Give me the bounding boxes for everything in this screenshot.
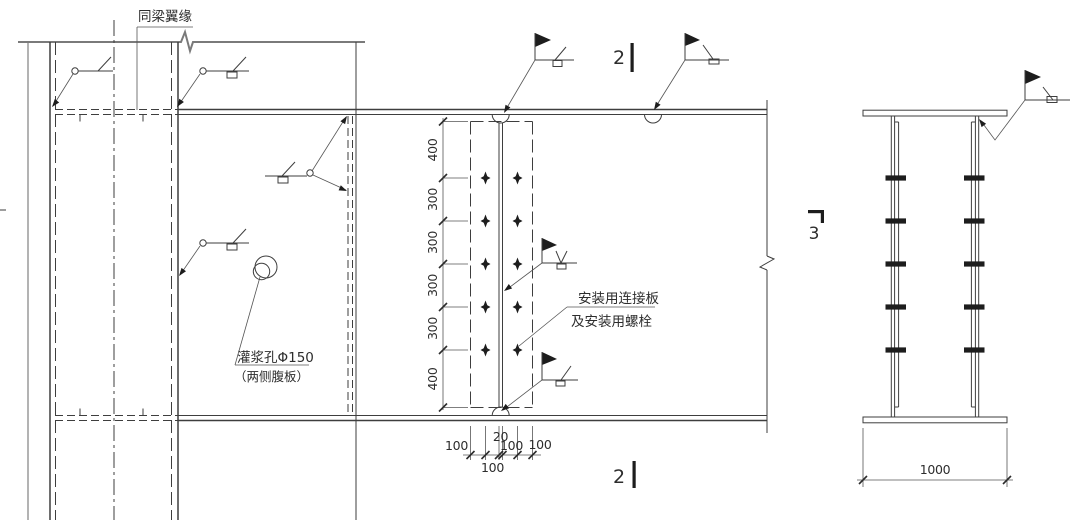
- weld-arc-flange: [645, 115, 662, 124]
- field-weld-flag-top-left: [504, 33, 574, 113]
- dim-300-1: 300: [425, 188, 440, 211]
- shop-weld-symbol-4: [179, 229, 249, 276]
- section-bottom-flange: [863, 417, 1007, 423]
- dim-300-2: 300: [425, 231, 440, 254]
- section-2-top-label: 2: [613, 47, 625, 69]
- upper-beam-flange-line: [18, 32, 365, 520]
- field-weld-flag-top-right: [654, 33, 729, 110]
- field-weld-flag-bottom: [501, 352, 578, 411]
- grout-hole-sublabel: （两侧腹板）: [234, 369, 309, 384]
- beam-elevation: [55, 100, 774, 433]
- bottom-dimension: 100 100 20 100 100: [445, 426, 552, 475]
- dim-400-bottom: 400: [425, 367, 440, 390]
- dim-400-top: 400: [425, 138, 440, 161]
- dim-1000: 1000: [920, 462, 951, 477]
- splice-note-line2: 及安装用螺栓: [571, 314, 652, 330]
- shop-weld-symbol-3: [265, 116, 347, 191]
- splice-note: 安装用连接板 及安装用螺栓: [519, 290, 659, 346]
- dim-100-right: 100: [529, 437, 552, 452]
- structural-drawing-canvas: 400 300 300 300 300 400 100 100 20 100 1…: [0, 0, 1080, 520]
- section-3-label: 3: [809, 224, 820, 244]
- section-view: 1000: [857, 110, 1013, 487]
- dim-100-below: 100: [481, 460, 504, 475]
- splice-note-line1: 安装用连接板: [578, 290, 659, 307]
- section-marker-2-top: 2: [613, 43, 634, 72]
- beam-break-line: [760, 100, 774, 433]
- section-bolt-bands: [886, 175, 985, 352]
- section-width-dimension: 1000: [857, 428, 1013, 487]
- left-edge-marks: [0, 42, 28, 520]
- section-top-flange: [863, 110, 1007, 116]
- installation-bolts: [481, 172, 523, 357]
- section-marker-3: 3: [808, 210, 824, 244]
- grout-hole-callout: 灌浆孔Φ150 （两侧腹板）: [234, 256, 314, 384]
- hidden-flange-in-column: [55, 110, 178, 421]
- splice-plate-hidden: [471, 122, 533, 408]
- beam-flange-note-label: 同梁翼缘: [138, 9, 192, 25]
- grout-hole: [255, 256, 277, 278]
- field-weld-flag-section: [979, 70, 1070, 140]
- hidden-stiffener: [348, 116, 353, 415]
- dim-300-4: 300: [425, 317, 440, 340]
- beam-flange-note: 同梁翼缘: [137, 9, 193, 110]
- section-marker-2-bottom: 2: [613, 461, 636, 488]
- column: [50, 20, 178, 520]
- shop-weld-symbol-1: [52, 57, 113, 107]
- grout-hole-label: 灌浆孔Φ150: [237, 350, 314, 366]
- drawing-svg: 400 300 300 300 300 400 100 100 20 100 1…: [0, 0, 1080, 520]
- dim-300-3: 300: [425, 274, 440, 297]
- dim-100-mid: 100: [500, 438, 523, 453]
- section-2-bottom-label: 2: [613, 466, 625, 488]
- dim-100-left: 100: [445, 438, 468, 453]
- shop-weld-symbol-2: [177, 57, 249, 107]
- vertical-dimension: 400 300 300 300 300 400: [425, 118, 468, 412]
